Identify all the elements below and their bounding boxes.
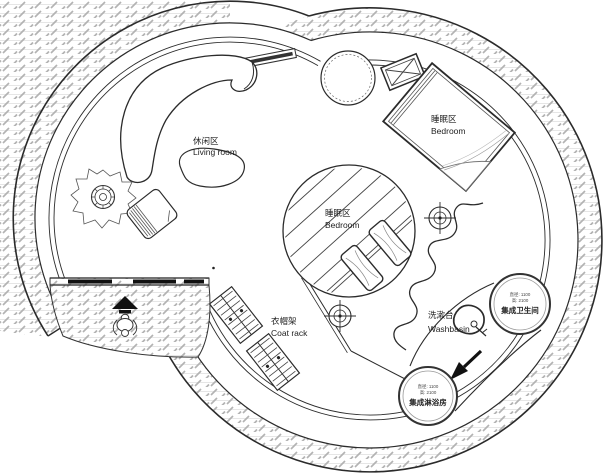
upper-bedroom-label-en: Bedroom	[431, 126, 466, 136]
upper-bedroom-label-zh: 睡眠区	[431, 114, 457, 124]
bathroom-pod-circle	[490, 274, 550, 334]
shower-pod-label: 集成淋浴房	[408, 397, 447, 407]
center-bedroom-label-zh: 睡眠区	[325, 208, 351, 218]
sliding-door-panel[interactable]	[68, 280, 112, 284]
shower-dim-diameter: 直径: 1100	[418, 383, 439, 389]
bathroom-dim-height: 高: 2100	[512, 297, 529, 304]
round-table	[321, 51, 375, 105]
bathroom-pod: 直径: 1100 高: 2100 集成卫生间	[490, 274, 550, 334]
floor-plan-canvas: 休闲区 Living room 睡眠区 Bedroom	[0, 0, 611, 473]
floor-plan-page: 休闲区 Living room 睡眠区 Bedroom	[0, 0, 611, 473]
point-marker	[212, 267, 215, 270]
coat-rack-label-zh: 衣帽架	[271, 316, 297, 326]
washbasin-label-en: Washbasin	[428, 324, 470, 334]
washbasin-label-zh: 洗漱台	[428, 310, 454, 320]
shower-dim-height: 高: 2100	[420, 389, 437, 396]
bathroom-dim-diameter: 直径: 1100	[510, 291, 531, 297]
coat-rack-label-en: Coat rack	[271, 328, 308, 338]
shower-pod-circle	[399, 367, 457, 425]
living-room-label-zh: 休闲区	[193, 136, 219, 146]
bathroom-pod-label: 集成卫生间	[500, 305, 539, 315]
living-room-label-en: Living room	[193, 147, 237, 157]
shower-pod: 直径: 1100 高: 2100 集成淋浴房	[399, 367, 457, 425]
sliding-door-panel[interactable]	[184, 280, 204, 284]
sliding-door-panel[interactable]	[133, 280, 176, 284]
center-bedroom-label-en: Bedroom	[325, 220, 360, 230]
